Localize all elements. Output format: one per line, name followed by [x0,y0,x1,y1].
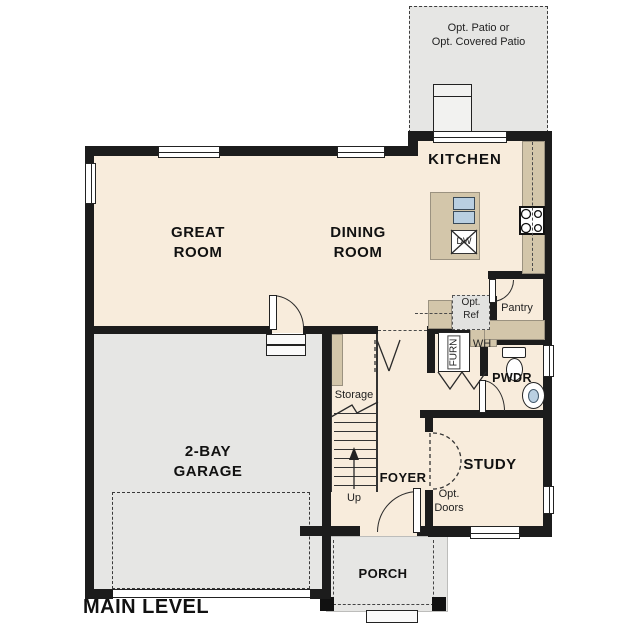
stair-tread [334,485,377,486]
wall [420,410,552,418]
powder-door [479,380,486,413]
garage-entry-step [266,334,306,345]
garage-entry-door [269,295,277,330]
stair-tread [334,449,377,450]
garage-entry-step [266,345,306,356]
powder-label: PWDR [489,371,535,385]
opt-doors-label: Opt. Doors [430,488,468,516]
window [543,345,554,377]
stair-tread [334,467,377,468]
patio-step-line [433,96,472,97]
porch-label: PORCH [352,566,414,581]
furnace-label: FURN [448,335,461,369]
window [85,163,96,204]
bathroom-sink [528,389,539,403]
wall [427,334,435,373]
porch-post [432,597,446,611]
great-room-label: GREAT ROOM [150,223,246,264]
window [470,526,520,539]
wall [425,418,433,432]
hall-opening-dash [378,330,427,331]
hall-cabinet [428,300,452,329]
dishwasher-label: DW [452,236,476,246]
opt-ref-label: Opt. Ref [452,297,490,322]
wall [85,326,272,334]
dining-room-label: DINING ROOM [313,223,403,264]
wall [303,326,378,334]
patio-step [433,84,472,133]
wall [408,131,418,156]
wall [322,334,331,598]
kitchen-sink [453,197,475,210]
stair-tread [334,413,377,414]
pantry-shelf [484,320,545,340]
floor-plan: Opt. Patio or Opt. Covered Patio [0,0,640,640]
stair-tread [334,476,377,477]
window [158,146,220,158]
upper-cabinet-dash [532,142,533,271]
water-heater-label: WH [468,338,496,352]
wall [85,146,94,598]
stair-tread [334,431,377,432]
porch-step [366,610,418,623]
front-door [413,488,421,533]
kitchen-label: KITCHEN [425,150,505,170]
toilet [502,347,526,358]
garage-door-outline [112,492,310,589]
storage-closet [331,334,343,386]
window [543,486,554,514]
garage-label: 2-BAY GARAGE [158,442,258,483]
stairs [331,334,332,492]
pantry-label: Pantry [496,302,538,316]
stair-tread [334,440,377,441]
stair-tread [334,422,377,423]
wall [310,589,331,599]
storage-label: Storage [330,389,378,403]
foyer-label: FOYER [378,470,428,485]
pantry-door [489,279,496,303]
upper-cabinet-dash [415,313,452,314]
wall [300,526,360,536]
kitchen-sink [453,211,475,224]
plan-title: MAIN LEVEL [83,596,243,619]
window [337,146,385,158]
stair-tread [334,458,377,459]
up-label: Up [340,492,368,506]
sliding-patio-door [433,131,507,143]
furnace: FURN [438,332,470,372]
study-label: STUDY [455,455,525,475]
porch-post [320,597,334,611]
patio-label: Opt. Patio or Opt. Covered Patio [409,22,548,50]
